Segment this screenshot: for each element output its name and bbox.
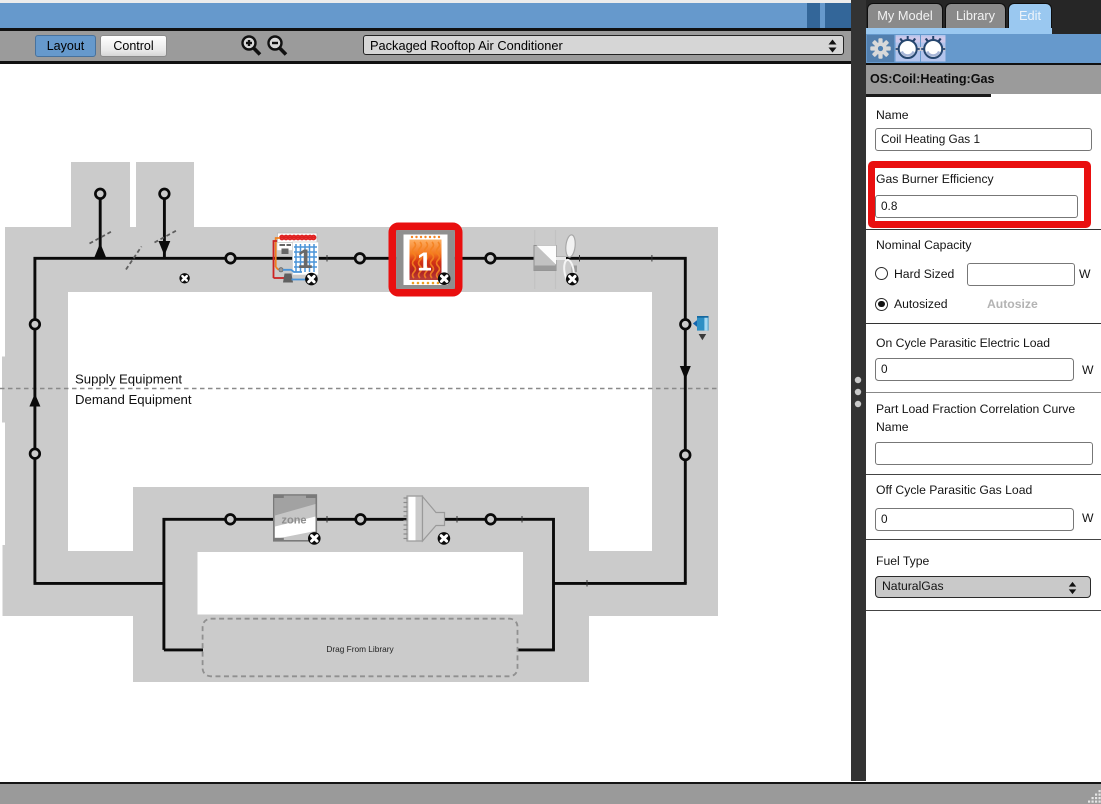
svg-text:1: 1 bbox=[417, 247, 431, 277]
svg-text:Drag From Library: Drag From Library bbox=[326, 644, 394, 654]
svg-text:Demand Equipment: Demand Equipment bbox=[75, 392, 192, 407]
svg-text:Supply Equipment: Supply Equipment bbox=[75, 372, 182, 387]
svg-text:zone: zone bbox=[281, 515, 306, 527]
svg-text:1: 1 bbox=[297, 244, 312, 274]
